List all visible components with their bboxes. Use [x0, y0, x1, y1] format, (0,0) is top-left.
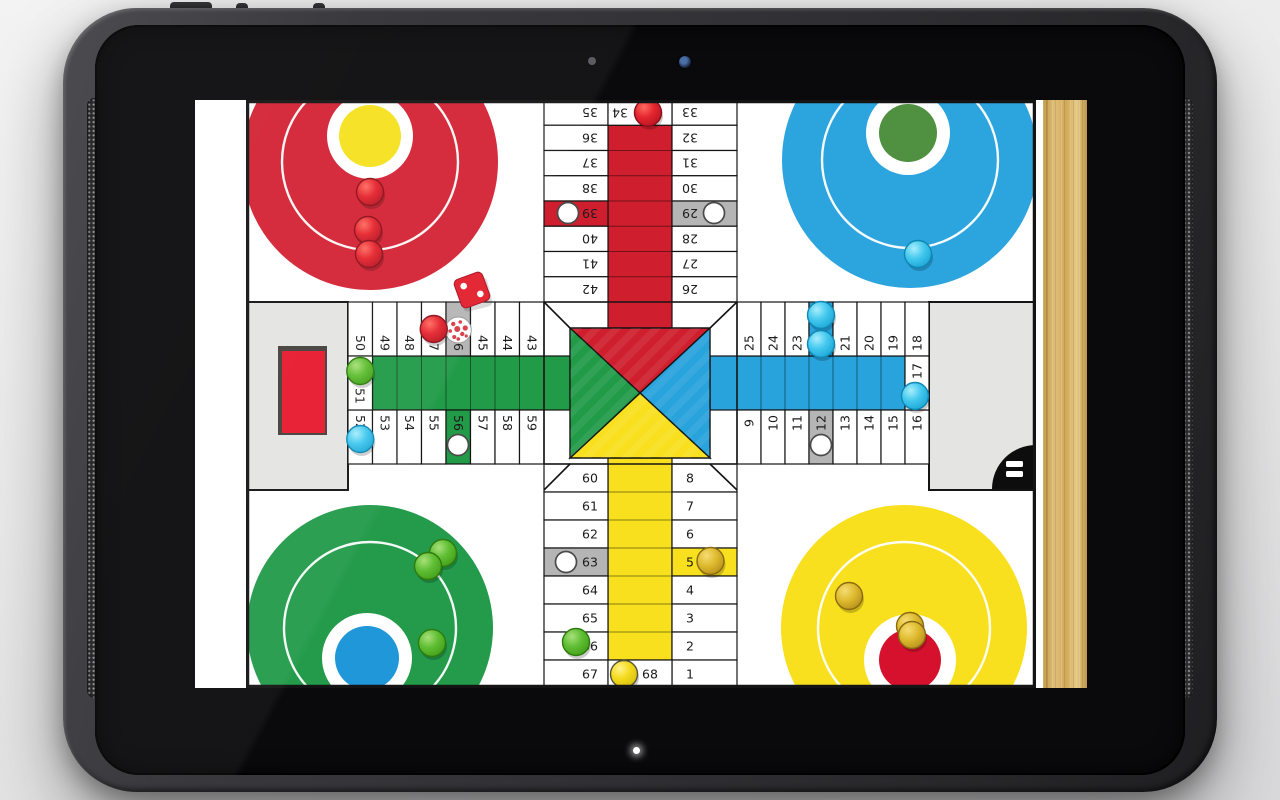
led-icon: [633, 747, 640, 754]
cell-number-33: 33: [682, 105, 698, 120]
cell-number-12: 12: [814, 415, 829, 431]
cell-number-18: 18: [910, 335, 925, 351]
cell-number-30: 30: [682, 181, 698, 196]
cell-number-38: 38: [582, 181, 598, 196]
cell-62[interactable]: [544, 520, 608, 548]
cell-27[interactable]: [672, 252, 737, 277]
cell-number-25: 25: [742, 335, 757, 351]
cell-number-27: 27: [682, 257, 698, 272]
cell-number-10: 10: [766, 415, 781, 431]
safe-marker-29: [704, 203, 725, 224]
cell-number-13: 13: [838, 415, 853, 431]
cell-number-31: 31: [682, 156, 698, 171]
cell-number-20: 20: [862, 335, 877, 351]
cell-number-64: 64: [582, 583, 598, 598]
cell-number-24: 24: [766, 335, 781, 351]
cell-number-56: 56: [451, 415, 466, 431]
cell-number-54: 54: [402, 415, 417, 431]
cell-3[interactable]: [672, 604, 737, 632]
runway-blue: [710, 356, 905, 410]
cell-26[interactable]: [672, 277, 737, 302]
cell-number-17: 17: [910, 363, 925, 379]
cell-number-68: 68: [642, 667, 658, 682]
cell-number-51: 51: [353, 388, 368, 404]
cell-64[interactable]: [544, 576, 608, 604]
wood-frame-right: [1043, 100, 1087, 688]
cell-number-23: 23: [790, 335, 805, 351]
cell-30[interactable]: [672, 176, 737, 201]
cell-65[interactable]: [544, 604, 608, 632]
cell-number-14: 14: [862, 415, 877, 431]
cell-number-62: 62: [582, 527, 598, 542]
cell-number-44: 44: [500, 335, 515, 351]
cell-number-39: 39: [582, 206, 598, 221]
cell-33[interactable]: [672, 100, 737, 125]
cell-number-53: 53: [377, 415, 392, 431]
cell-number-11: 11: [790, 415, 805, 431]
dice-tray[interactable]: [282, 351, 325, 433]
cell-number-34: 34: [612, 106, 628, 121]
cell-number-57: 57: [475, 415, 490, 431]
safe-marker-39: [558, 203, 579, 224]
safe-marker-63: [556, 552, 577, 573]
cell-number-32: 32: [682, 130, 698, 145]
cell-number-58: 58: [500, 415, 515, 431]
page-background: 3533608505225936326174953241037316264854…: [0, 0, 1280, 800]
runway-yellow: [608, 458, 672, 660]
cell-7[interactable]: [672, 492, 737, 520]
sensor-dot-icon: [588, 57, 596, 65]
cell-60[interactable]: [544, 464, 608, 492]
cell-number-42: 42: [582, 282, 598, 297]
cell-number-37: 37: [582, 156, 598, 171]
cell-number-15: 15: [886, 415, 901, 431]
cell-number-7: 7: [686, 499, 694, 514]
cell-number-50: 50: [353, 335, 368, 351]
cell-number-29: 29: [682, 206, 698, 221]
cell-number-1: 1: [686, 667, 694, 682]
cell-number-48: 48: [402, 335, 417, 351]
cell-number-63: 63: [582, 555, 598, 570]
cell-2[interactable]: [672, 632, 737, 660]
tablet-device: 3533608505225936326174953241037316264854…: [63, 8, 1217, 792]
cell-number-49: 49: [377, 335, 392, 351]
cell-number-43: 43: [524, 335, 539, 351]
cell-number-35: 35: [582, 105, 598, 120]
cell-number-16: 16: [910, 415, 925, 431]
cell-number-59: 59: [524, 415, 539, 431]
cell-number-61: 61: [582, 499, 598, 514]
cell-number-21: 21: [838, 335, 853, 351]
cell-number-67: 67: [582, 667, 598, 682]
cell-number-60: 60: [582, 471, 598, 486]
safe-marker-56: [448, 435, 469, 456]
wood-frame-left: [195, 100, 233, 688]
cell-number-36: 36: [582, 130, 598, 145]
cell-9[interactable]: [737, 410, 761, 464]
cell-number-9: 9: [742, 419, 757, 427]
cell-6[interactable]: [672, 520, 737, 548]
tablet-screen: 3533608505225936326174953241037316264854…: [95, 25, 1185, 775]
runway-green: [373, 356, 571, 410]
cell-number-2: 2: [686, 639, 694, 654]
cell-number-65: 65: [582, 611, 598, 626]
cell-number-28: 28: [682, 231, 698, 246]
rolling-die[interactable]: [445, 317, 471, 343]
cell-1[interactable]: [672, 660, 737, 688]
cell-28[interactable]: [672, 226, 737, 251]
cell-number-55: 55: [426, 415, 441, 431]
cell-67[interactable]: [544, 660, 608, 688]
cell-number-19: 19: [886, 335, 901, 351]
cell-number-8: 8: [686, 471, 694, 486]
menu-icon: [1006, 461, 1023, 467]
cell-number-5: 5: [686, 555, 694, 570]
cell-32[interactable]: [672, 125, 737, 150]
cell-4[interactable]: [672, 576, 737, 604]
cell-8[interactable]: [672, 464, 737, 492]
cell-number-3: 3: [686, 611, 694, 626]
cell-number-4: 4: [686, 583, 694, 598]
parchis-board: 3533608505225936326174953241037316264854…: [246, 100, 1036, 688]
game-area: 3533608505225936326174953241037316264854…: [195, 100, 1087, 688]
cell-number-45: 45: [475, 335, 490, 351]
cell-number-6: 6: [686, 527, 694, 542]
cell-number-41: 41: [582, 257, 598, 272]
safe-marker-12: [811, 435, 832, 456]
cell-number-26: 26: [682, 282, 698, 297]
cell-number-40: 40: [582, 231, 598, 246]
cell-61[interactable]: [544, 492, 608, 520]
camera-lens-icon: [679, 56, 691, 68]
cell-31[interactable]: [672, 151, 737, 176]
